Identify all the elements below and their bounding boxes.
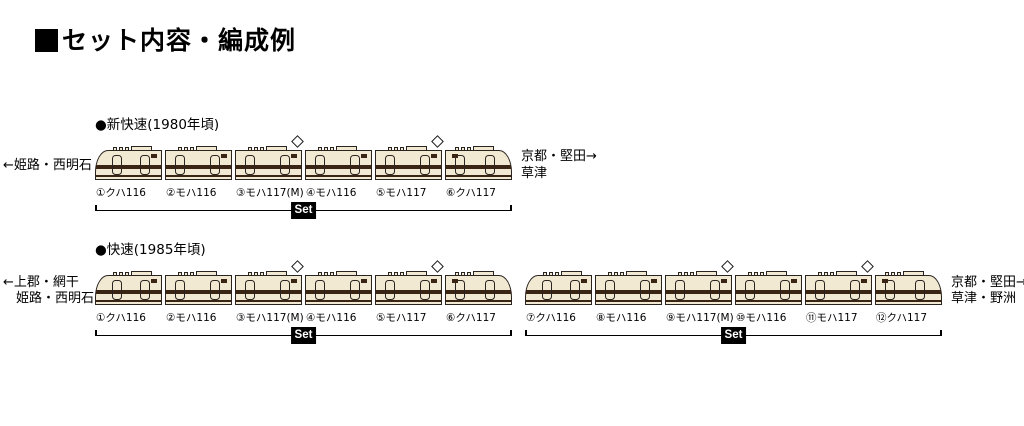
destination-right-line1: 京都・堅田→ bbox=[951, 275, 1024, 291]
car-door bbox=[245, 155, 255, 175]
page-title-row: セット内容・編成例 bbox=[35, 28, 1024, 53]
car-door bbox=[485, 280, 495, 300]
car-label: ③モハ117(M) bbox=[236, 185, 304, 200]
car-door bbox=[745, 280, 755, 300]
side-vent-icon bbox=[361, 154, 367, 158]
body-lower-stripe bbox=[876, 300, 941, 302]
formation-block-shinkaisoku-1980: ●新快速(1980年頃) ←姫路・西明石 京都・堅田→ 草津 ①クハ116②モハ… bbox=[0, 117, 1024, 226]
body-lower-stripe bbox=[96, 300, 161, 302]
side-vent-icon bbox=[431, 279, 437, 283]
train-car bbox=[165, 275, 232, 305]
car-door bbox=[210, 155, 220, 175]
car-door bbox=[112, 280, 122, 300]
destination-right-line2: 草津 bbox=[521, 166, 597, 182]
train-car bbox=[305, 150, 372, 180]
train-car bbox=[95, 275, 162, 305]
set-bracket: Set bbox=[95, 335, 512, 336]
roof-vents-icon bbox=[113, 271, 152, 276]
train-car bbox=[875, 275, 942, 305]
destination-left: ←姫路・西明石 bbox=[3, 134, 95, 181]
side-vent-icon bbox=[581, 279, 587, 283]
car-door bbox=[640, 280, 650, 300]
car-door bbox=[420, 280, 430, 300]
roof-vents-icon bbox=[248, 146, 287, 151]
train-car bbox=[375, 150, 442, 180]
car-door bbox=[210, 280, 220, 300]
car-door bbox=[850, 280, 860, 300]
side-vent-icon bbox=[651, 279, 657, 283]
roof-vents-icon bbox=[748, 271, 787, 276]
body-lower-stripe bbox=[166, 175, 231, 177]
body-lower-stripe bbox=[526, 300, 591, 302]
body-lower-stripe bbox=[306, 300, 371, 302]
car-label: ⑥クハ117 bbox=[446, 310, 496, 325]
train-car bbox=[735, 275, 802, 305]
car-door bbox=[815, 280, 825, 300]
car-door bbox=[420, 155, 430, 175]
train-car bbox=[235, 275, 302, 305]
roof-vents-icon bbox=[318, 146, 357, 151]
car-door bbox=[885, 280, 895, 300]
body-lower-stripe bbox=[376, 175, 441, 177]
train-line: ←上郡・網干 姫路・西明石 京都・堅田→ 草津・野洲 bbox=[3, 259, 1024, 306]
pantograph-diamond-icon bbox=[291, 135, 304, 148]
side-vent-icon bbox=[151, 279, 157, 283]
car-door bbox=[385, 155, 395, 175]
car-door bbox=[455, 280, 465, 300]
pantograph-diamond-icon bbox=[861, 261, 874, 274]
car-door bbox=[675, 280, 685, 300]
car-label: ④モハ116 bbox=[306, 185, 356, 200]
page-title: セット内容・編成例 bbox=[62, 28, 296, 53]
car-door bbox=[280, 280, 290, 300]
car-label: ②モハ116 bbox=[166, 185, 216, 200]
car-labels-row: ①クハ116②モハ116③モハ117(M)④モハ116⑤モハ117⑥クハ117⑦… bbox=[95, 310, 1024, 325]
train-car bbox=[525, 275, 592, 305]
car-door bbox=[140, 280, 150, 300]
destination-right-line1: 京都・堅田→ bbox=[521, 149, 597, 165]
train-car bbox=[445, 275, 512, 305]
side-vent-icon bbox=[452, 154, 458, 158]
roof-vents-icon bbox=[178, 146, 217, 151]
side-vent-icon bbox=[361, 279, 367, 283]
car-door bbox=[112, 155, 122, 175]
roof-vents-icon bbox=[388, 146, 427, 151]
pantograph-diamond-icon bbox=[431, 135, 444, 148]
train-line: ←姫路・西明石 京都・堅田→ 草津 bbox=[3, 134, 1024, 181]
set-bracket: Set bbox=[525, 335, 942, 336]
roof-vents-icon bbox=[388, 271, 427, 276]
car-door bbox=[245, 280, 255, 300]
body-lower-stripe bbox=[446, 300, 511, 302]
roof-vents-icon bbox=[455, 271, 494, 276]
car-door bbox=[350, 155, 360, 175]
body-lower-stripe bbox=[736, 300, 801, 302]
set-badge: Set bbox=[721, 327, 747, 344]
pantograph-diamond-icon bbox=[721, 261, 734, 274]
side-vent-icon bbox=[791, 279, 797, 283]
destination-right: 京都・堅田→ 草津 bbox=[521, 134, 597, 181]
car-label: ⑤モハ117 bbox=[376, 310, 426, 325]
side-vent-icon bbox=[721, 279, 727, 283]
train-car bbox=[805, 275, 872, 305]
car-door bbox=[780, 280, 790, 300]
car-label: ⑩モハ116 bbox=[736, 310, 786, 325]
car-door bbox=[455, 155, 465, 175]
side-vent-icon bbox=[452, 279, 458, 283]
car-label: ⑧モハ116 bbox=[596, 310, 646, 325]
car-door bbox=[385, 280, 395, 300]
roof-vents-icon bbox=[543, 271, 582, 276]
body-lower-stripe bbox=[236, 175, 301, 177]
side-vent-icon bbox=[882, 279, 888, 283]
side-vent-icon bbox=[431, 154, 437, 158]
roof-vents-icon bbox=[318, 271, 357, 276]
train-car bbox=[665, 275, 732, 305]
car-label: ⑫クハ117 bbox=[876, 310, 927, 325]
car-door bbox=[315, 280, 325, 300]
roof-vents-icon bbox=[608, 271, 647, 276]
body-lower-stripe bbox=[166, 300, 231, 302]
car-label: ③モハ117(M) bbox=[236, 310, 304, 325]
title-square-bullet bbox=[35, 29, 58, 52]
pantograph-diamond-icon bbox=[431, 261, 444, 274]
roof-vents-icon bbox=[113, 146, 152, 151]
car-label: ①クハ116 bbox=[96, 310, 146, 325]
car-door bbox=[710, 280, 720, 300]
car-door bbox=[140, 155, 150, 175]
body-stripe bbox=[526, 290, 591, 294]
body-lower-stripe bbox=[236, 300, 301, 302]
side-vent-icon bbox=[291, 279, 297, 283]
body-stripe bbox=[96, 290, 161, 294]
formation-title: ●快速(1985年頃) bbox=[95, 242, 1024, 258]
car-label: ⑥クハ117 bbox=[446, 185, 496, 200]
formation-title: ●新快速(1980年頃) bbox=[95, 117, 1024, 133]
train-car bbox=[595, 275, 662, 305]
set-bracket: Set bbox=[95, 210, 512, 211]
set-badge: Set bbox=[291, 202, 317, 219]
car-door bbox=[315, 155, 325, 175]
pantograph-diamond-icon bbox=[291, 261, 304, 274]
side-vent-icon bbox=[291, 154, 297, 158]
car-label: ②モハ116 bbox=[166, 310, 216, 325]
car-label: ⑤モハ117 bbox=[376, 185, 426, 200]
car-label: ①クハ116 bbox=[96, 185, 146, 200]
car-door bbox=[542, 280, 552, 300]
destination-left-line1: ←上郡・網干 bbox=[3, 275, 95, 291]
side-vent-icon bbox=[221, 279, 227, 283]
body-lower-stripe bbox=[376, 300, 441, 302]
car-label: ⑦クハ116 bbox=[526, 310, 576, 325]
destination-right: 京都・堅田→ 草津・野洲 bbox=[951, 259, 1024, 306]
body-lower-stripe bbox=[806, 300, 871, 302]
body-lower-stripe bbox=[596, 300, 661, 302]
destination-left: ←上郡・網干 姫路・西明石 bbox=[3, 259, 95, 306]
roof-vents-icon bbox=[248, 271, 287, 276]
train-car bbox=[375, 275, 442, 305]
set-badge: Set bbox=[291, 327, 317, 344]
body-lower-stripe bbox=[306, 175, 371, 177]
set-brackets-row: Set bbox=[95, 204, 1024, 226]
body-lower-stripe bbox=[446, 175, 511, 177]
car-door bbox=[175, 280, 185, 300]
car-door bbox=[605, 280, 615, 300]
train-car bbox=[305, 275, 372, 305]
train-car bbox=[445, 150, 512, 180]
formation-block-kaisoku-1985: ●快速(1985年頃) ←上郡・網干 姫路・西明石 京都・堅田→ 草津・野洲 ①… bbox=[0, 242, 1024, 351]
set-brackets-row: SetSet bbox=[95, 329, 1024, 351]
car-label: ④モハ116 bbox=[306, 310, 356, 325]
train-cars bbox=[95, 150, 512, 180]
car-door bbox=[570, 280, 580, 300]
train-car bbox=[235, 150, 302, 180]
destination-left-line1: ←姫路・西明石 bbox=[3, 158, 95, 174]
car-labels-row: ①クハ116②モハ116③モハ117(M)④モハ116⑤モハ117⑥クハ117 bbox=[95, 185, 1024, 200]
car-door bbox=[280, 155, 290, 175]
roof-vents-icon bbox=[885, 271, 924, 276]
body-stripe bbox=[96, 165, 161, 169]
car-door bbox=[915, 280, 925, 300]
roof-vents-icon bbox=[455, 146, 494, 151]
car-door bbox=[175, 155, 185, 175]
side-vent-icon bbox=[151, 154, 157, 158]
roof-vents-icon bbox=[678, 271, 717, 276]
car-door bbox=[350, 280, 360, 300]
side-vent-icon bbox=[221, 154, 227, 158]
page: セット内容・編成例 ●新快速(1980年頃) ←姫路・西明石 京都・堅田→ 草津… bbox=[0, 0, 1024, 351]
destination-left-line2: 姫路・西明石 bbox=[3, 291, 95, 307]
roof-vents-icon bbox=[818, 271, 857, 276]
roof-vents-icon bbox=[178, 271, 217, 276]
train-cars bbox=[95, 275, 942, 305]
train-car bbox=[95, 150, 162, 180]
destination-right-line2: 草津・野洲 bbox=[951, 291, 1024, 307]
train-car bbox=[165, 150, 232, 180]
body-lower-stripe bbox=[666, 300, 731, 302]
body-lower-stripe bbox=[96, 175, 161, 177]
car-label: ⑪モハ117 bbox=[806, 310, 858, 325]
car-door bbox=[485, 155, 495, 175]
side-vent-icon bbox=[861, 279, 867, 283]
car-label: ⑨モハ117(M) bbox=[666, 310, 734, 325]
